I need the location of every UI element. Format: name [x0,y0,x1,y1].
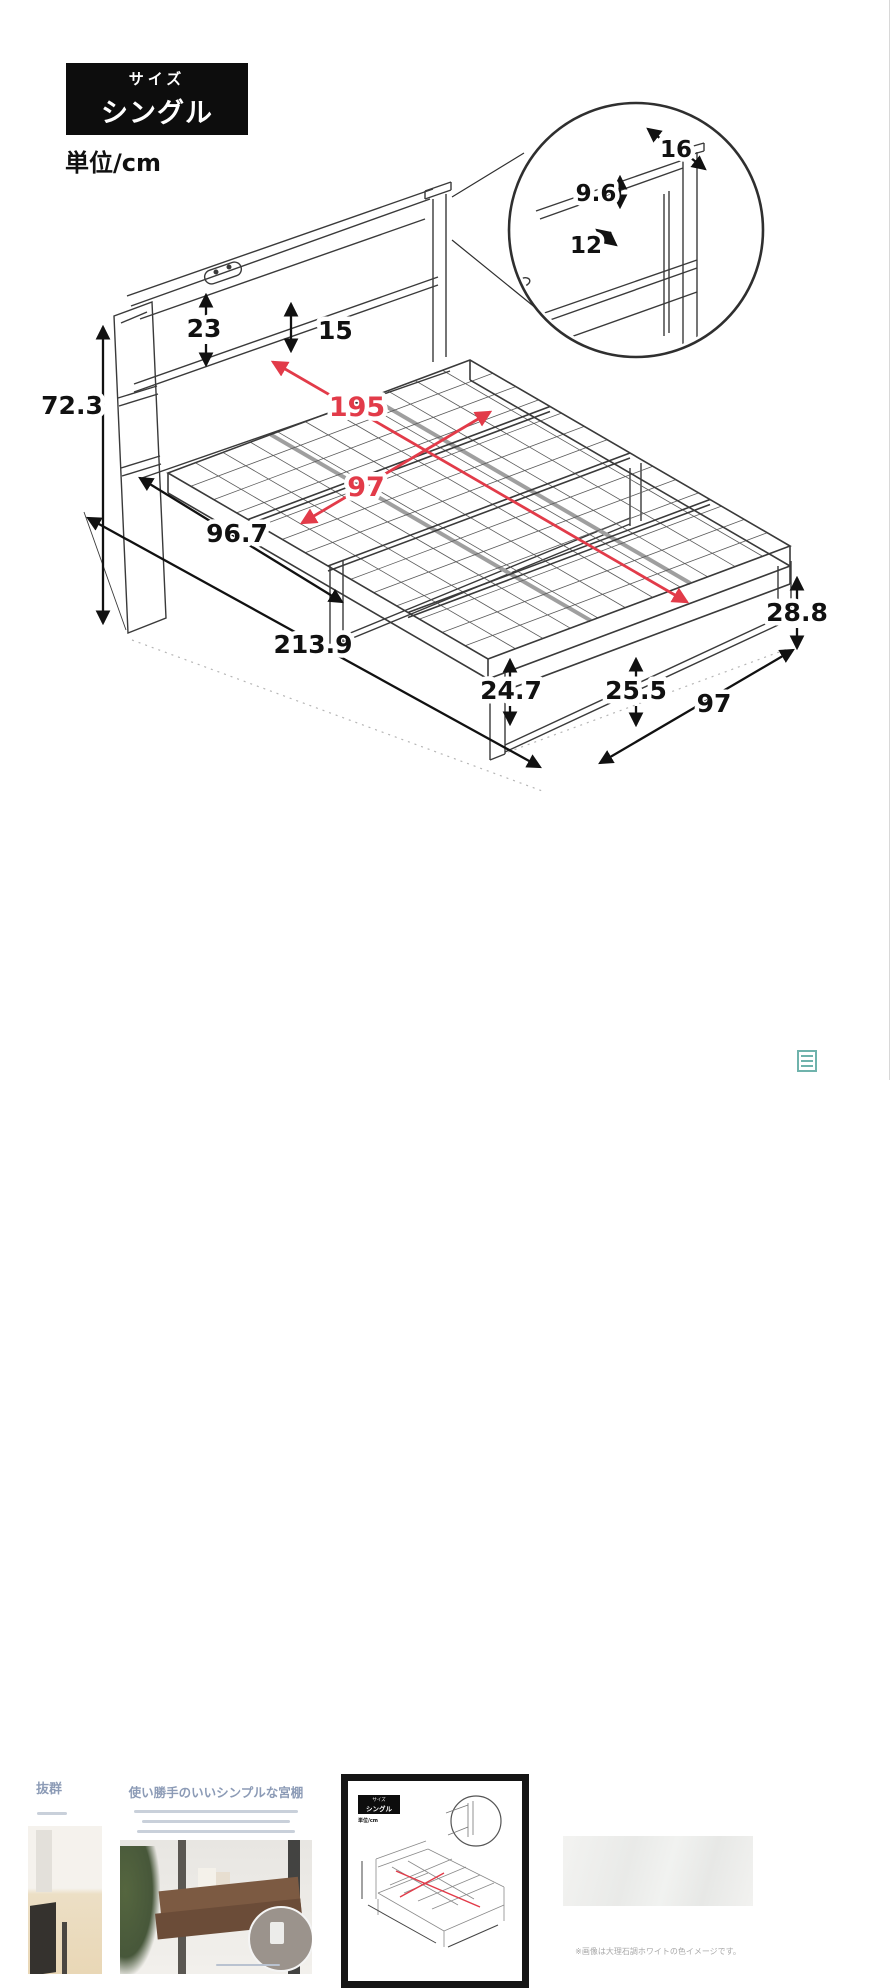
thumbnail-marble-white[interactable]: ※画像は大理石調ホワイトの色イメージです。 [563,1774,753,1974]
text-line [37,1812,67,1815]
dim-foot-height: 28.8 [766,598,828,627]
dim-detail-12: 12 [570,233,602,259]
dim-clearance-25-5: 25.5 [605,676,667,705]
curtain [36,1830,52,1892]
thumbnail-room-photo[interactable]: 抜群 [0,1774,102,1974]
thumbnail-size-diagram-selected[interactable]: サイズ シングル 単位/cm [341,1774,529,1988]
thumb2-heading: 使い勝手のいいシンプルな宮棚 [120,1782,312,1801]
thumb2-photo [120,1840,312,1974]
dim-foot-width: 97 [697,689,732,718]
dim-clearance-24-7: 24.7 [480,676,542,705]
dim-under-span: 96.7 [206,519,268,548]
product-page: { "colors": { "accent_red": "#e23b49", "… [0,0,894,1080]
dim-total-length: 213.9 [273,630,352,659]
dim-detail-9-6: 9.6 [576,181,617,207]
thumbnail-strip: 抜群 使い勝手のいいシンプルな宮棚 サイズ シングル [0,884,894,1080]
thumb1-photo [28,1826,102,1974]
watermark-icon [797,1050,817,1072]
bed-frame-lines [84,463,791,792]
bed-dimension-diagram: 72.3 23 15 96.7 213.9 24.7 25.5 97 28.8 … [0,0,894,884]
text-line [142,1820,290,1823]
text-line [134,1810,298,1813]
thumb4-caption: ※画像は大理石調ホワイトの色イメージです。 [563,1946,753,1957]
thumbnail-headboard-feature[interactable]: 使い勝手のいいシンプルな宮棚 [120,1774,312,1974]
plant [120,1846,160,1974]
dim-headboard-height: 72.3 [41,391,103,420]
mini-bed-diagram [348,1781,522,1967]
dim-detail-16: 16 [660,137,692,163]
text-line [216,1964,280,1966]
dim-shelf-23: 23 [187,314,222,343]
bed-leg [62,1922,67,1974]
outlet-plug [270,1922,284,1944]
dim-sleeping-length: 195 [329,392,385,423]
page-divider [889,0,890,1080]
text-line [137,1830,295,1833]
dim-shelf-15: 15 [318,316,353,345]
thumb1-caption: 抜群 [36,1778,62,1797]
marble-swatch [563,1836,753,1906]
dim-sleeping-width: 97 [347,472,385,503]
detail-magnifier-circle [509,103,763,357]
bed-leg [30,1902,56,1974]
main-product-image[interactable]: サイズ シングル 単位/cm [0,0,894,884]
